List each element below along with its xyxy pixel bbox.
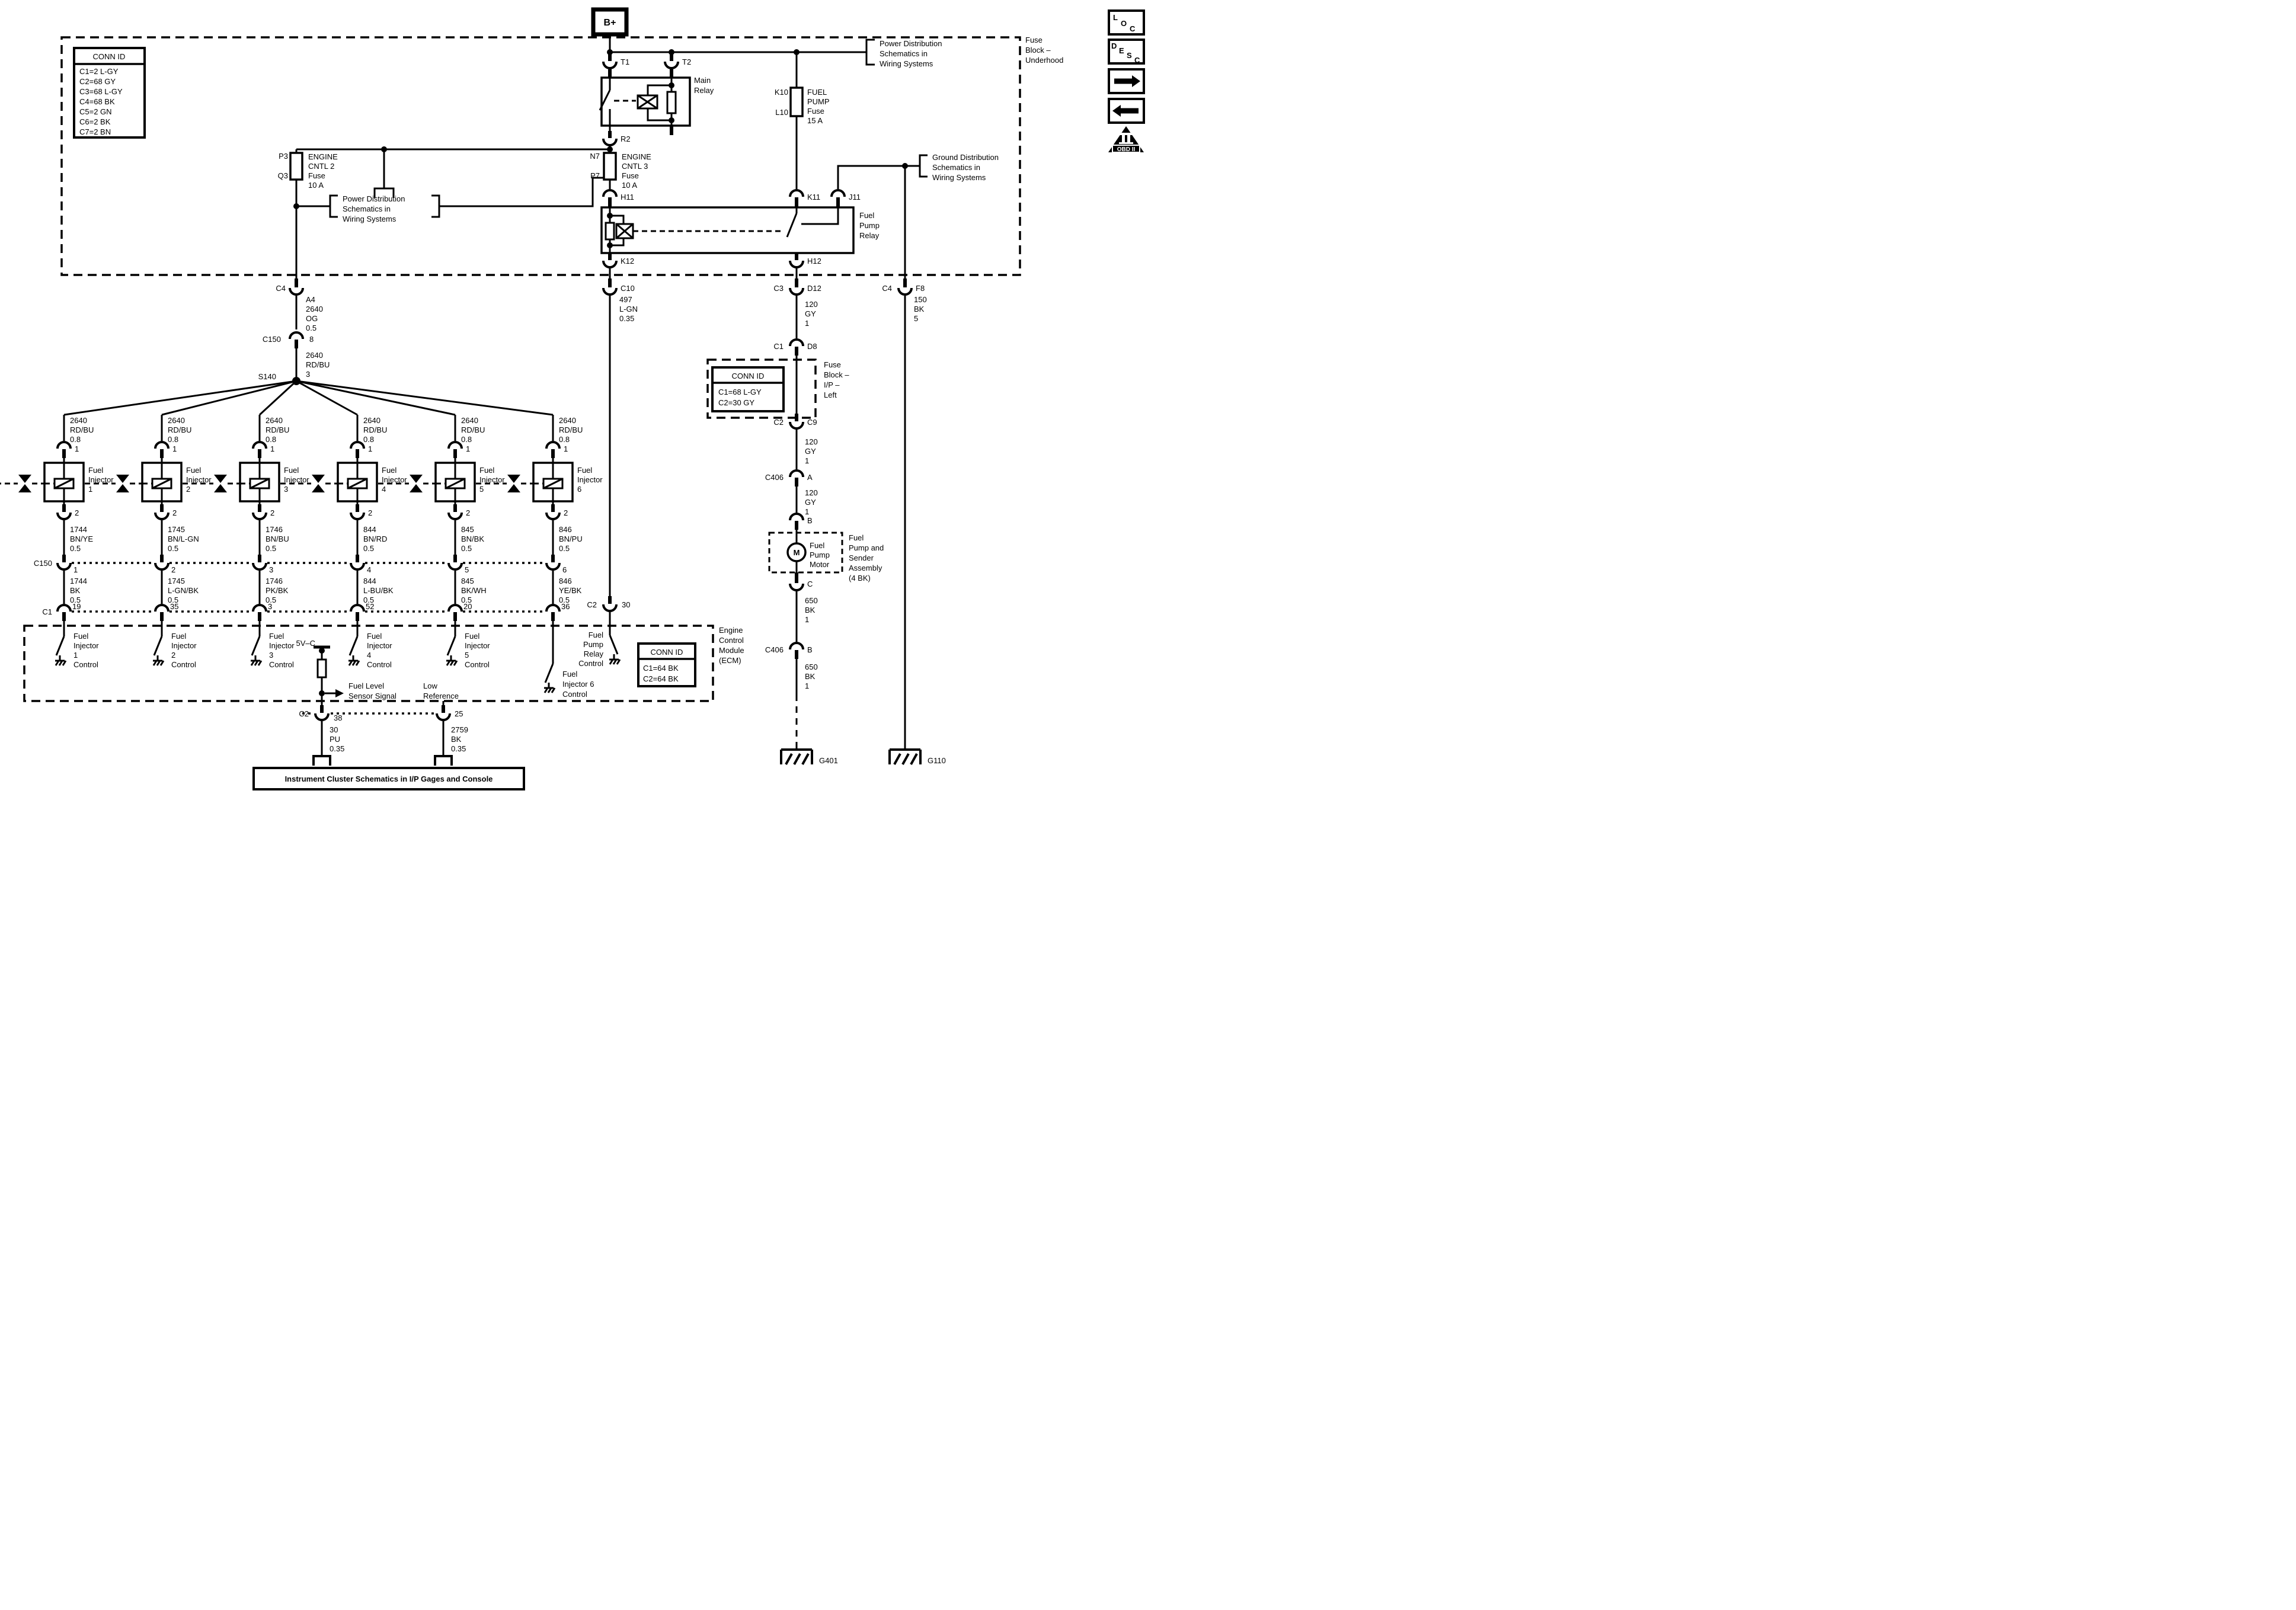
- svg-text:Fuse: Fuse: [622, 171, 639, 180]
- svg-text:BN/L-GN: BN/L-GN: [168, 534, 199, 543]
- c1-row-connector: [155, 605, 168, 612]
- svg-text:6: 6: [577, 485, 581, 494]
- svg-text:N7: N7: [590, 152, 600, 161]
- svg-text:1: 1: [172, 444, 177, 453]
- svg-text:Injector: Injector: [382, 475, 407, 484]
- svg-text:10 A: 10 A: [622, 181, 637, 190]
- svg-text:846: 846: [559, 525, 572, 534]
- svg-text:1745: 1745: [168, 577, 185, 585]
- svg-text:Injector: Injector: [367, 641, 392, 650]
- svg-text:0.5: 0.5: [559, 544, 570, 553]
- injector-bottom-connector: [546, 513, 559, 519]
- svg-text:Relay: Relay: [694, 86, 714, 95]
- svg-text:OBD II: OBD II: [1117, 146, 1136, 153]
- svg-text:Control: Control: [367, 660, 392, 669]
- svg-text:2640: 2640: [168, 416, 185, 425]
- svg-text:Main: Main: [694, 76, 711, 85]
- svg-text:Q3: Q3: [278, 171, 288, 180]
- svg-text:C2: C2: [299, 709, 309, 718]
- svg-text:4: 4: [367, 565, 371, 574]
- svg-text:497: 497: [619, 295, 632, 304]
- svg-text:RD/BU: RD/BU: [266, 425, 289, 434]
- c150-main-connector: [290, 332, 303, 339]
- svg-text:52: 52: [366, 602, 374, 611]
- svg-text:Injector: Injector: [577, 475, 603, 484]
- fuse-block-underhood-label: Fuse Block – Underhood: [1025, 36, 1063, 65]
- svg-text:B: B: [807, 645, 813, 654]
- c3-d12-connector: [790, 288, 803, 295]
- b-plus-label: B+: [604, 18, 616, 28]
- svg-text:Injector: Injector: [465, 641, 490, 650]
- svg-text:C3=68 L-GY: C3=68 L-GY: [79, 87, 123, 96]
- svg-text:D12: D12: [807, 284, 821, 293]
- svg-text:H12: H12: [807, 257, 821, 265]
- svg-text:2640: 2640: [559, 416, 576, 425]
- svg-text:Control: Control: [269, 660, 294, 669]
- svg-text:RD/BU: RD/BU: [363, 425, 387, 434]
- ecm-driver: Fuel Injector 5 Control: [446, 626, 490, 669]
- nozzle-icon: [214, 484, 227, 492]
- instrument-cluster-link: Instrument Cluster Schematics in I/P Gag…: [254, 768, 524, 789]
- svg-text:2: 2: [564, 508, 568, 517]
- svg-text:A4: A4: [306, 295, 315, 304]
- engine-cntl3-fuse: N7 P7 ENGINE CNTL 3 Fuse 10 A: [590, 152, 651, 190]
- svg-text:Fuse: Fuse: [807, 107, 824, 116]
- svg-text:C10: C10: [621, 284, 635, 293]
- fuel-pump-relay-box: [602, 207, 853, 253]
- svg-text:Instrument Cluster Schematics: Instrument Cluster Schematics in I/P Gag…: [285, 774, 493, 783]
- injector-top-connector: [57, 442, 71, 449]
- c150-row-connector: [253, 563, 266, 569]
- svg-text:2: 2: [186, 485, 190, 494]
- injector-columns: 2640 RD/BU 0.8 1 Fuel Injector 1: [0, 415, 603, 626]
- svg-text:GY: GY: [805, 498, 816, 507]
- injector-top-connector: [351, 442, 364, 449]
- svg-text:C4: C4: [276, 284, 286, 293]
- svg-text:120: 120: [805, 488, 818, 497]
- svg-text:0.8: 0.8: [461, 435, 472, 444]
- svg-text:0.35: 0.35: [330, 744, 344, 753]
- fuel-pump-column: 120 GY 1 C1 D8 CONN ID C1=68 L-GY C2=30 …: [708, 296, 884, 748]
- svg-text:Fuse: Fuse: [824, 360, 841, 369]
- svg-text:RD/BU: RD/BU: [559, 425, 583, 434]
- svg-text:6: 6: [562, 565, 567, 574]
- c1-row-connector: [546, 605, 559, 612]
- svg-text:G110: G110: [928, 756, 946, 765]
- svg-text:S140: S140: [258, 372, 276, 381]
- svg-text:19: 19: [72, 602, 81, 611]
- svg-text:4: 4: [382, 485, 386, 494]
- svg-text:25: 25: [455, 709, 463, 718]
- conn-id-ecm-box: CONN ID C1=64 BK C2=64 BK: [638, 644, 695, 686]
- svg-text:2: 2: [466, 508, 470, 517]
- ecm-driver-pump-relay: Fuel Pump Relay Control: [578, 630, 620, 668]
- svg-text:Pump and: Pump and: [849, 543, 884, 552]
- svg-text:10 A: 10 A: [308, 181, 324, 190]
- c150-row-connector: [351, 563, 364, 569]
- loc-icon[interactable]: L O C: [1109, 11, 1144, 34]
- svg-text:Module: Module: [719, 646, 744, 655]
- svg-text:P3: P3: [279, 152, 288, 161]
- svg-text:RD/BU: RD/BU: [461, 425, 485, 434]
- svg-text:Low: Low: [423, 681, 437, 690]
- ecm-driver: Fuel Injector 2 Control: [153, 626, 197, 669]
- svg-text:C5=2 GN: C5=2 GN: [79, 107, 112, 116]
- svg-text:844: 844: [363, 577, 376, 585]
- svg-text:5: 5: [465, 651, 469, 660]
- svg-text:BK: BK: [70, 586, 81, 595]
- svg-text:(ECM): (ECM): [719, 656, 741, 665]
- h12-connector: [790, 261, 803, 267]
- svg-text:Power Distribution: Power Distribution: [343, 194, 405, 203]
- svg-text:1: 1: [368, 444, 372, 453]
- svg-text:0.5: 0.5: [70, 544, 81, 553]
- svg-text:C2: C2: [773, 418, 784, 427]
- svg-text:0.8: 0.8: [266, 435, 276, 444]
- svg-text:C1=64 BK: C1=64 BK: [643, 664, 679, 673]
- svg-text:C406: C406: [765, 645, 784, 654]
- svg-text:CONN ID: CONN ID: [732, 372, 765, 380]
- svg-text:L-GN/BK: L-GN/BK: [168, 586, 199, 595]
- svg-text:Control: Control: [73, 660, 98, 669]
- injector-top-connector: [253, 442, 266, 449]
- c1-row-connector: [253, 605, 266, 612]
- svg-text:Control: Control: [171, 660, 196, 669]
- svg-text:1746: 1746: [266, 577, 283, 585]
- svg-text:Injector: Injector: [186, 475, 212, 484]
- svg-text:2640: 2640: [306, 351, 323, 360]
- c2-c9-connector: [790, 422, 803, 428]
- svg-text:BN/BK: BN/BK: [461, 534, 484, 543]
- svg-text:Block –: Block –: [1025, 46, 1051, 55]
- c1-row-connector: [351, 605, 364, 612]
- svg-text:Fuel: Fuel: [88, 466, 103, 475]
- g401-ground: G401: [781, 750, 838, 765]
- svg-text:C1: C1: [42, 607, 52, 616]
- svg-text:T1: T1: [621, 57, 629, 66]
- svg-text:1744: 1744: [70, 577, 87, 585]
- svg-text:Block –: Block –: [824, 370, 849, 379]
- svg-text:2640: 2640: [363, 416, 380, 425]
- nozzle-icon: [18, 475, 31, 483]
- fuse-symbol: [290, 153, 302, 180]
- svg-text:YE/BK: YE/BK: [559, 586, 582, 595]
- svg-text:5: 5: [465, 565, 469, 574]
- svg-text:Underhood: Underhood: [1025, 56, 1063, 65]
- engine-cntl2-fuse: P3 Q3 ENGINE CNTL 2 Fuse 10 A: [278, 152, 338, 279]
- c406-a-connector: [790, 470, 803, 477]
- svg-text:Control: Control: [465, 660, 490, 669]
- svg-text:S: S: [1127, 51, 1132, 60]
- ecm-driver: Fuel Injector 3 Control: [251, 626, 295, 669]
- svg-text:1746: 1746: [266, 525, 283, 534]
- svg-text:D: D: [1111, 41, 1117, 50]
- svg-text:Injector: Injector: [269, 641, 295, 650]
- svg-text:3: 3: [284, 485, 288, 494]
- svg-text:3: 3: [268, 602, 272, 611]
- j11-connector: [832, 190, 845, 197]
- svg-text:C4: C4: [882, 284, 892, 293]
- svg-text:RD/BU: RD/BU: [168, 425, 191, 434]
- injector-column: 2640 RD/BU 0.8 1 Fuel Injector 6: [476, 415, 603, 626]
- svg-text:1: 1: [88, 485, 92, 494]
- svg-text:Wiring Systems: Wiring Systems: [343, 215, 396, 223]
- h11-connector: [603, 190, 616, 197]
- pin-c-connector: [790, 584, 803, 590]
- main-relay-resistor: [667, 92, 676, 113]
- c2-30-connector: [603, 604, 616, 611]
- svg-text:OG: OG: [306, 314, 318, 323]
- injector-bottom-connector: [449, 513, 462, 519]
- svg-text:Pump: Pump: [859, 221, 880, 230]
- c1-row-connector: [449, 605, 462, 612]
- svg-text:P7: P7: [590, 171, 600, 180]
- svg-text:Assembly: Assembly: [849, 564, 882, 572]
- c1-row-connector: [57, 605, 71, 612]
- conn-id-title: CONN ID: [93, 52, 126, 61]
- c406-b-connector: [790, 643, 803, 649]
- c2-38-connector: [315, 713, 328, 720]
- svg-text:C3: C3: [773, 284, 784, 293]
- svg-text:2640: 2640: [306, 305, 323, 313]
- relay-resistor: [606, 223, 614, 239]
- svg-text:Sender: Sender: [849, 553, 874, 562]
- arrow-right-icon[interactable]: [1109, 69, 1144, 93]
- injector-bottom-connector: [253, 513, 266, 519]
- svg-text:0.35: 0.35: [619, 314, 634, 323]
- nozzle-icon: [507, 475, 520, 483]
- svg-text:2640: 2640: [70, 416, 87, 425]
- svg-text:PK/BK: PK/BK: [266, 586, 289, 595]
- svg-text:BK: BK: [805, 606, 816, 614]
- conn-id-underhood-box: CONN ID C1=2 L-GY C2=68 GY C3=68 L-GY C4…: [74, 48, 145, 137]
- svg-text:C1: C1: [773, 342, 784, 351]
- svg-text:3: 3: [269, 651, 273, 660]
- injector-column: 2640 RD/BU 0.8 1 Fuel Injector 1: [0, 415, 114, 626]
- c1-d8-connector: [790, 340, 803, 346]
- svg-text:F8: F8: [916, 284, 925, 293]
- svg-text:1: 1: [805, 456, 809, 465]
- t1-connector: [603, 62, 616, 68]
- svg-text:C1=2 L-GY: C1=2 L-GY: [79, 67, 119, 76]
- svg-text:BK: BK: [914, 305, 925, 313]
- svg-text:30: 30: [622, 600, 630, 609]
- svg-text:BN/PU: BN/PU: [559, 534, 583, 543]
- page-link-bracket: [435, 756, 452, 766]
- svg-text:844: 844: [363, 525, 376, 534]
- right-ground-wire: 150 BK 5: [905, 295, 927, 748]
- svg-text:845: 845: [461, 525, 474, 534]
- svg-text:L-BU/BK: L-BU/BK: [363, 586, 394, 595]
- svg-text:2759: 2759: [451, 725, 468, 734]
- injector-column: 2640 RD/BU 0.8 1 Fuel Injector 3: [183, 415, 309, 626]
- svg-text:1745: 1745: [168, 525, 185, 534]
- svg-text:ENGINE: ENGINE: [308, 152, 338, 161]
- injector-column: 2640 RD/BU 0.8 1 Fuel Injector 5: [378, 415, 505, 626]
- svg-text:2640: 2640: [266, 416, 283, 425]
- svg-text:1: 1: [466, 444, 470, 453]
- svg-text:E: E: [1119, 46, 1124, 55]
- battery-feed: B+: [593, 9, 626, 52]
- svg-text:C6=2 BK: C6=2 BK: [79, 117, 111, 126]
- svg-text:Injector 6: Injector 6: [562, 680, 594, 689]
- svg-text:0.5: 0.5: [168, 544, 178, 553]
- cntl2-branch: [296, 146, 613, 198]
- obd2-icon[interactable]: OBD II: [1108, 126, 1144, 153]
- svg-text:Pump: Pump: [810, 550, 830, 559]
- svg-text:CNTL 3: CNTL 3: [622, 162, 648, 171]
- svg-text:1: 1: [805, 681, 809, 690]
- svg-text:Fuse: Fuse: [308, 171, 325, 180]
- svg-text:Injector: Injector: [479, 475, 505, 484]
- svg-text:4: 4: [367, 651, 371, 660]
- svg-text:L: L: [1113, 13, 1118, 22]
- svg-text:0.5: 0.5: [461, 544, 472, 553]
- svg-text:BN/YE: BN/YE: [70, 534, 93, 543]
- svg-text:Fuel: Fuel: [186, 466, 201, 475]
- svg-text:Schematics in: Schematics in: [880, 49, 928, 58]
- svg-text:Engine: Engine: [719, 626, 743, 635]
- svg-text:Control: Control: [719, 636, 744, 645]
- r2-connector: [603, 139, 616, 145]
- nozzle-icon: [312, 475, 325, 483]
- svg-text:Fuel: Fuel: [810, 541, 824, 550]
- wiring-diagram: Fuse Block – Underhood CONN ID C1=2 L-GY…: [0, 0, 1148, 805]
- c4-f8-connector: [898, 288, 912, 295]
- svg-text:Injector: Injector: [284, 475, 309, 484]
- svg-text:Relay: Relay: [859, 231, 880, 240]
- svg-text:K12: K12: [621, 257, 634, 265]
- svg-text:C9: C9: [807, 418, 817, 427]
- top-supply-wire: [607, 49, 866, 55]
- svg-text:2: 2: [368, 508, 372, 517]
- ecm-injector-drivers: Fuel Injector 1 Control Fuel Injector 2 …: [55, 626, 490, 669]
- svg-text:Fuel: Fuel: [859, 211, 874, 220]
- nozzle-icon: [410, 484, 423, 492]
- svg-text:C7=2 BN: C7=2 BN: [79, 127, 111, 136]
- injector-bottom-connector: [351, 513, 364, 519]
- svg-text:FUEL: FUEL: [807, 88, 827, 97]
- svg-text:2: 2: [75, 508, 79, 517]
- svg-text:2: 2: [171, 651, 175, 660]
- desc-icon[interactable]: D E S C: [1109, 40, 1144, 65]
- injector-bottom-connector: [155, 513, 168, 519]
- injector-bottom-connector: [57, 513, 71, 519]
- svg-text:Fuel: Fuel: [849, 533, 864, 542]
- page-link-bracket: [314, 756, 330, 766]
- fuse-symbol: [604, 153, 616, 180]
- injector-column: 2640 RD/BU 0.8 1 Fuel Injector 4: [280, 415, 407, 626]
- svg-text:2: 2: [270, 508, 274, 517]
- svg-text:Pump: Pump: [583, 640, 603, 649]
- svg-text:Ground Distribution: Ground Distribution: [932, 153, 999, 162]
- svg-text:0.8: 0.8: [168, 435, 178, 444]
- svg-text:Fuel: Fuel: [269, 632, 284, 641]
- svg-text:T2: T2: [682, 57, 691, 66]
- svg-text:Control: Control: [562, 690, 587, 699]
- fuel-pump-fuse: K10 L10 FUEL PUMP Fuse 15 A: [775, 52, 830, 189]
- svg-text:Relay: Relay: [584, 649, 604, 658]
- underhood-exit-connectors: C4 C10 C3 D12 C4 F8: [276, 279, 925, 295]
- svg-text:1: 1: [564, 444, 568, 453]
- svg-text:650: 650: [805, 662, 818, 671]
- svg-text:O: O: [1121, 19, 1127, 28]
- svg-text:L10: L10: [775, 108, 788, 117]
- svg-text:J11: J11: [849, 193, 861, 201]
- svg-text:Schematics in: Schematics in: [932, 163, 980, 172]
- svg-text:RD/BU: RD/BU: [306, 360, 330, 369]
- svg-text:K10: K10: [775, 88, 788, 97]
- pin-b-connector: [790, 514, 803, 520]
- ecm-label: Engine Control Module (ECM): [719, 626, 744, 665]
- k12-connector: [603, 261, 616, 267]
- svg-text:Fuel: Fuel: [465, 632, 479, 641]
- nozzle-icon: [116, 475, 129, 483]
- svg-text:Fuel: Fuel: [577, 466, 592, 475]
- svg-text:1: 1: [805, 319, 809, 328]
- svg-text:2: 2: [172, 508, 177, 517]
- svg-text:Injector: Injector: [88, 475, 114, 484]
- svg-text:BN/BU: BN/BU: [266, 534, 289, 543]
- main-relay: T1 T2 Main Relay R2: [600, 53, 714, 153]
- svg-text:1: 1: [73, 565, 78, 574]
- c10-connector: [603, 288, 616, 295]
- svg-text:C150: C150: [263, 335, 281, 344]
- injector-column: 2640 RD/BU 0.8 1 Fuel Injector 2: [85, 415, 212, 626]
- svg-text:0.8: 0.8: [70, 435, 81, 444]
- nozzle-icon: [214, 475, 227, 483]
- arrow-left-icon[interactable]: [1109, 99, 1144, 123]
- svg-text:Sensor Signal: Sensor Signal: [348, 692, 396, 700]
- pin-25-connector: [437, 713, 450, 720]
- svg-text:Fuel: Fuel: [589, 630, 603, 639]
- fuel-pump-relay: H11 K11 J11 Fuel Pump Relay K12 H12: [602, 190, 880, 279]
- svg-text:1: 1: [805, 507, 809, 516]
- svg-text:Fuse: Fuse: [1025, 36, 1043, 44]
- svg-text:5: 5: [479, 485, 484, 494]
- svg-text:R2: R2: [621, 135, 631, 143]
- relay-control-wire: 497 L-GN 0.35 C2 30: [587, 295, 638, 635]
- svg-text:C2=64 BK: C2=64 BK: [643, 674, 679, 683]
- svg-text:C406: C406: [765, 473, 784, 482]
- nozzle-icon: [410, 475, 423, 483]
- svg-text:1: 1: [805, 615, 809, 624]
- svg-text:BN/RD: BN/RD: [363, 534, 387, 543]
- svg-text:PUMP: PUMP: [807, 97, 830, 106]
- svg-text:ENGINE: ENGINE: [622, 152, 651, 161]
- cluster-wires: C2 38 30 PU 0.35 25 2759 BK 0.35: [299, 701, 468, 766]
- c150-row-connector: [546, 563, 559, 569]
- power-dist-mid-link: Power Distribution Schematics in Wiring …: [296, 178, 604, 223]
- nozzle-icon: [116, 484, 129, 492]
- svg-text:30: 30: [330, 725, 338, 734]
- injector-top-connector: [546, 442, 559, 449]
- c150-row-connector: [57, 563, 71, 569]
- svg-text:Wiring Systems: Wiring Systems: [932, 173, 986, 182]
- svg-text:Control: Control: [578, 659, 603, 668]
- svg-text:A: A: [807, 473, 813, 482]
- svg-text:3: 3: [306, 370, 310, 379]
- fuse-symbol: [791, 88, 802, 116]
- svg-text:Motor: Motor: [810, 560, 830, 569]
- injector-top-connector: [155, 442, 168, 449]
- svg-text:Injector: Injector: [171, 641, 197, 650]
- power-dist-top-link: Power Distribution Schematics in Wiring …: [866, 39, 942, 68]
- svg-text:K11: K11: [807, 193, 820, 201]
- svg-text:I/P –: I/P –: [824, 380, 840, 389]
- svg-text:C4=68 BK: C4=68 BK: [79, 97, 115, 106]
- svg-text:Injector: Injector: [73, 641, 99, 650]
